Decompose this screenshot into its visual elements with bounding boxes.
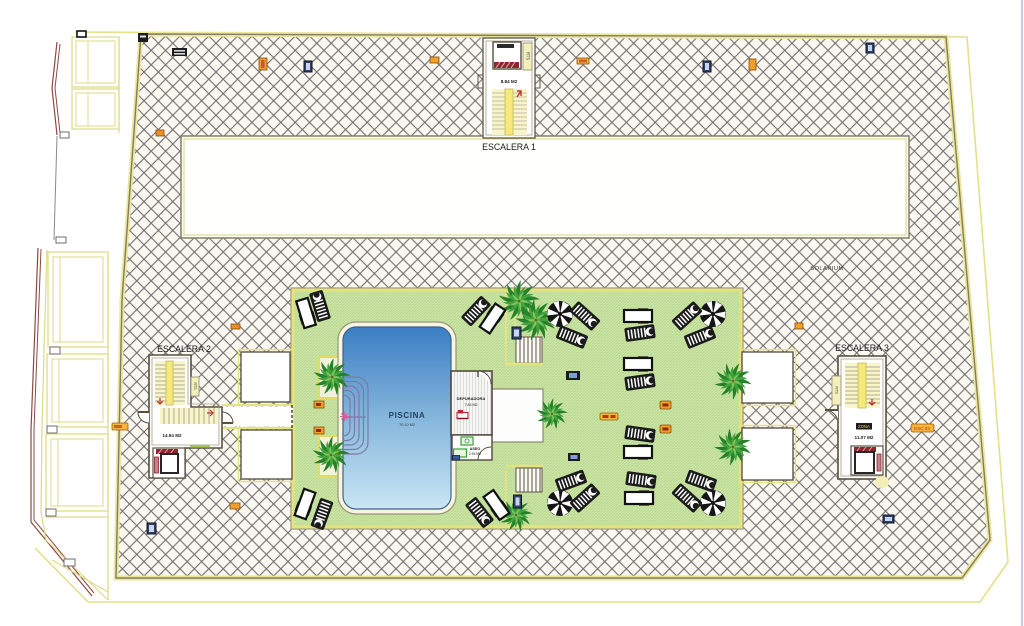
- svg-text:8.84 M2: 8.84 M2: [501, 79, 518, 84]
- svg-text:ESCALERA 1: ESCALERA 1: [482, 142, 536, 152]
- svg-text:PISCINA: PISCINA: [389, 411, 426, 420]
- svg-text:ESC 03: ESC 03: [914, 426, 930, 431]
- svg-text:70.10 M2: 70.10 M2: [399, 423, 415, 427]
- svg-text:14.94 M2: 14.94 M2: [162, 433, 182, 438]
- svg-text:11.07 M2: 11.07 M2: [855, 435, 874, 440]
- svg-text:RTS: RTS: [193, 382, 197, 390]
- svg-text:RTS: RTS: [835, 386, 839, 394]
- svg-text:ESCALERA 2: ESCALERA 2: [157, 344, 211, 354]
- svg-text:DEPURADORA: DEPURADORA: [457, 396, 486, 401]
- svg-text:2.94 M2: 2.94 M2: [469, 452, 481, 456]
- svg-text:SOLARIUM: SOLARIUM: [810, 266, 843, 272]
- svg-text:RTS: RTS: [526, 52, 531, 61]
- svg-text:ESCALERA 3: ESCALERA 3: [835, 343, 889, 353]
- svg-text:7.83 M2: 7.83 M2: [465, 403, 478, 407]
- svg-text:ASEO: ASEO: [470, 447, 481, 451]
- svg-text:ZONA: ZONA: [858, 424, 870, 429]
